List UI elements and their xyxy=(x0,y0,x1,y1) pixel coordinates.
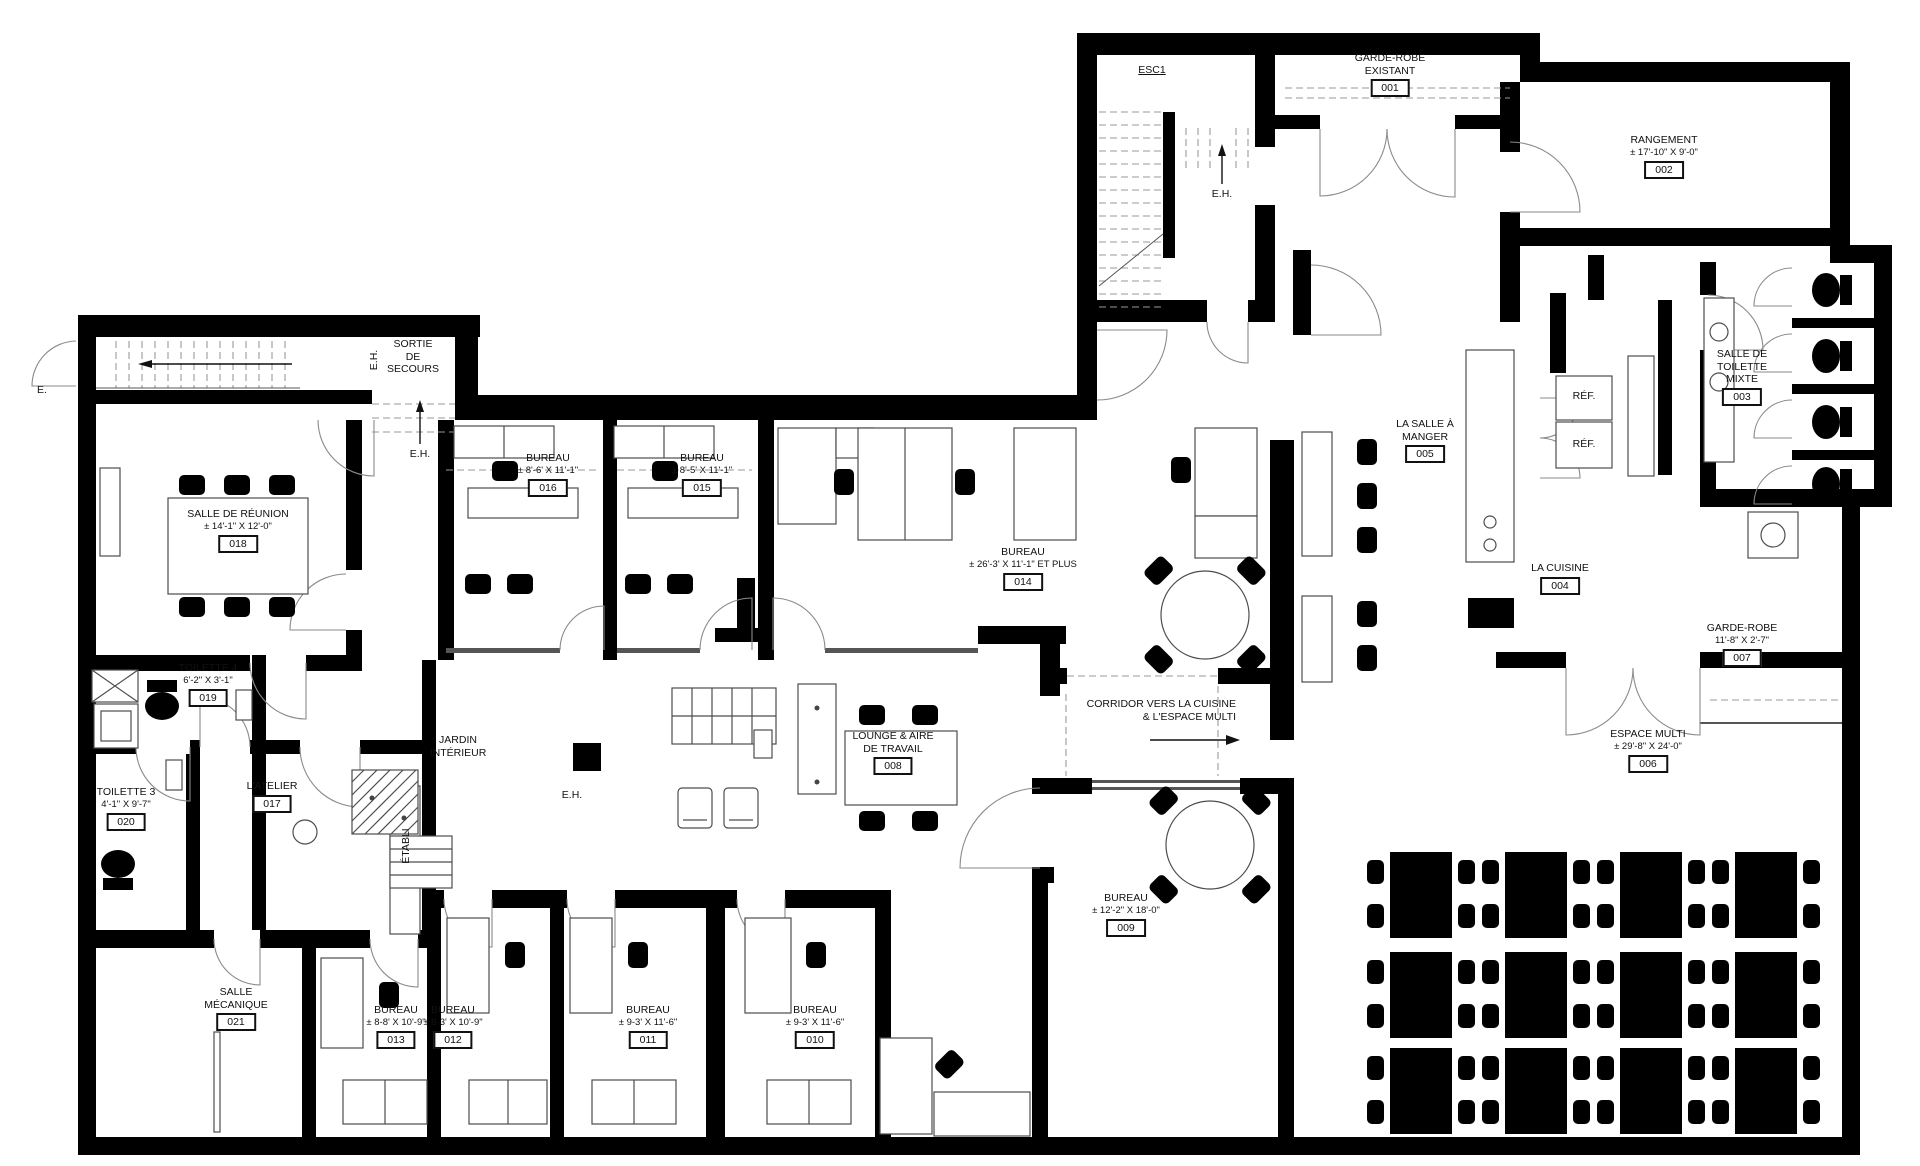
room-number-011: 011 xyxy=(629,1031,668,1049)
room-label-010: BUREAU± 9-3' X 11'-6" 010 xyxy=(786,1004,845,1049)
room-label-019: TOILETTE 46'-2" X 3'-1" 019 xyxy=(179,662,238,707)
room-label-013: BUREAU± 8-8' X 10'-9" 013 xyxy=(366,1004,425,1049)
fridge-label-1: RÉF. xyxy=(1573,390,1596,403)
room-label-018: SALLE DE RÉUNION± 14'-1" X 12'-0" 018 xyxy=(187,508,289,553)
room-number-008: 008 xyxy=(873,757,913,775)
room-number-012: 012 xyxy=(433,1031,473,1049)
room-number-016: 016 xyxy=(528,479,568,497)
up-arrow-icon xyxy=(416,400,424,412)
room-number-020: 020 xyxy=(106,813,146,831)
room-number-019: 019 xyxy=(188,689,228,707)
corridor-label: CORRIDOR VERS LA CUISINE& L'ESPACE MULTI xyxy=(1040,698,1236,723)
room-label-015: BUREAU± 8'-5' X 11'-1" 015 xyxy=(672,452,732,497)
fridge-label-2: RÉF. xyxy=(1573,438,1596,451)
room-number-018: 018 xyxy=(218,535,258,553)
room-number-010: 010 xyxy=(795,1031,835,1049)
room-label-003: SALLE DETOILETTEMIXTE 003 xyxy=(1717,348,1767,406)
room-number-006: 006 xyxy=(1628,755,1668,773)
floor-plan: ESC1 E.H. GARDE-ROBEEXISTANT 001 RANGEME… xyxy=(0,0,1920,1166)
eh-label-jardin: E.H. xyxy=(562,789,582,802)
room-label-012: BUREAU± 8-3' X 10'-9" 012 xyxy=(423,1004,482,1049)
stair-cut-lines xyxy=(96,234,1163,388)
room-label-004: LA CUISINE 004 xyxy=(1531,562,1589,595)
room-number-009: 009 xyxy=(1106,919,1146,937)
room-number-004: 004 xyxy=(1540,577,1580,595)
room-label-001: GARDE-ROBEEXISTANT 001 xyxy=(1355,52,1426,97)
room-label-017: L'ATELIER 017 xyxy=(247,780,298,813)
room-number-013: 013 xyxy=(376,1031,416,1049)
up-arrow-icon xyxy=(1218,144,1226,156)
exit-label-sortie: SORTIEDESECOURS xyxy=(387,338,439,376)
room-label-014: BUREAU± 26'-3' X 11'-1" ET PLUS 014 xyxy=(969,546,1077,591)
room-label-020: TOILETTE 34'-1" X 9'-7" 020 xyxy=(97,786,156,831)
right-arrow-icon xyxy=(1226,735,1240,745)
room-number-002: 002 xyxy=(1644,161,1684,179)
room-label-006: ESPACE MULTI± 29'-8" X 24'-0" 006 xyxy=(1610,728,1685,773)
garden-label-jardin: JARDININTÉRIEUR xyxy=(430,734,487,759)
room-label-005: LA SALLE ÀMANGER 005 xyxy=(1396,418,1454,463)
room-number-007: 007 xyxy=(1722,649,1762,667)
room-label-009: BUREAU± 12'-2" X 18'-0" 009 xyxy=(1092,892,1160,937)
room-number-003: 003 xyxy=(1722,388,1762,406)
room-number-001: 001 xyxy=(1370,79,1410,97)
room-label-007: GARDE-ROBE11'-8" X 2'-7" 007 xyxy=(1707,622,1778,667)
room-number-005: 005 xyxy=(1405,445,1445,463)
room-label-002: RANGEMENT± 17'-10" X 9'-0" 002 xyxy=(1630,134,1698,179)
room-number-017: 017 xyxy=(252,795,292,813)
room-number-015: 015 xyxy=(682,479,722,497)
entry-label: E. xyxy=(37,384,47,397)
eh-label-landing: E.H. xyxy=(410,448,430,461)
left-arrow-icon xyxy=(138,360,152,368)
eh-label-sortie: E.H. xyxy=(368,350,381,370)
room-label-008: LOUNGE & AIREDE TRAVAIL 008 xyxy=(852,730,933,775)
room-number-014: 014 xyxy=(1003,573,1043,591)
stair-label-esc1: ESC1 xyxy=(1138,64,1165,77)
eh-label-stair: E.H. xyxy=(1212,188,1232,201)
workbench-label-etabli: ÉTABLI xyxy=(400,828,413,863)
room-label-016: BUREAU± 8'-6' X 11'-1" 016 xyxy=(518,452,578,497)
room-label-011: BUREAU± 9-3' X 11'-6" 011 xyxy=(619,1004,678,1049)
room-label-021: SALLEMÉCANIQUE 021 xyxy=(204,986,268,1031)
room-number-021: 021 xyxy=(216,1013,256,1031)
